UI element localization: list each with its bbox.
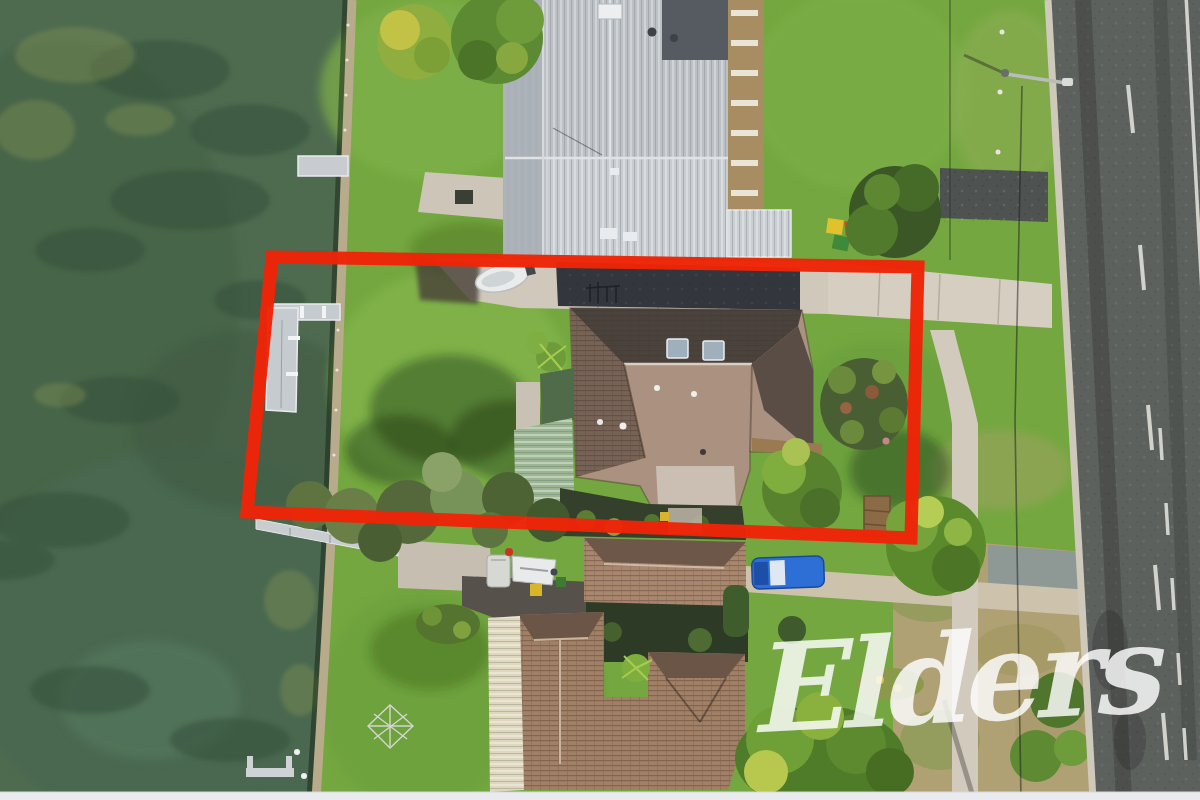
yellow-bin [530, 584, 542, 596]
bottom-strip [0, 792, 1200, 800]
bottom-house-rear-roof [584, 538, 746, 606]
jetty-top [298, 156, 348, 176]
boat-trailer [512, 556, 558, 585]
red-marker [505, 548, 513, 556]
blue-ute [751, 556, 824, 589]
tree-at-corner [886, 496, 986, 596]
parked-van [487, 555, 510, 587]
elders-watermark: Elders [745, 596, 1170, 762]
green-bin [556, 577, 566, 587]
garage [727, 210, 791, 257]
aerial-photo: Elders [0, 0, 1200, 800]
aerial-photo-canvas: Elders [0, 0, 1200, 800]
